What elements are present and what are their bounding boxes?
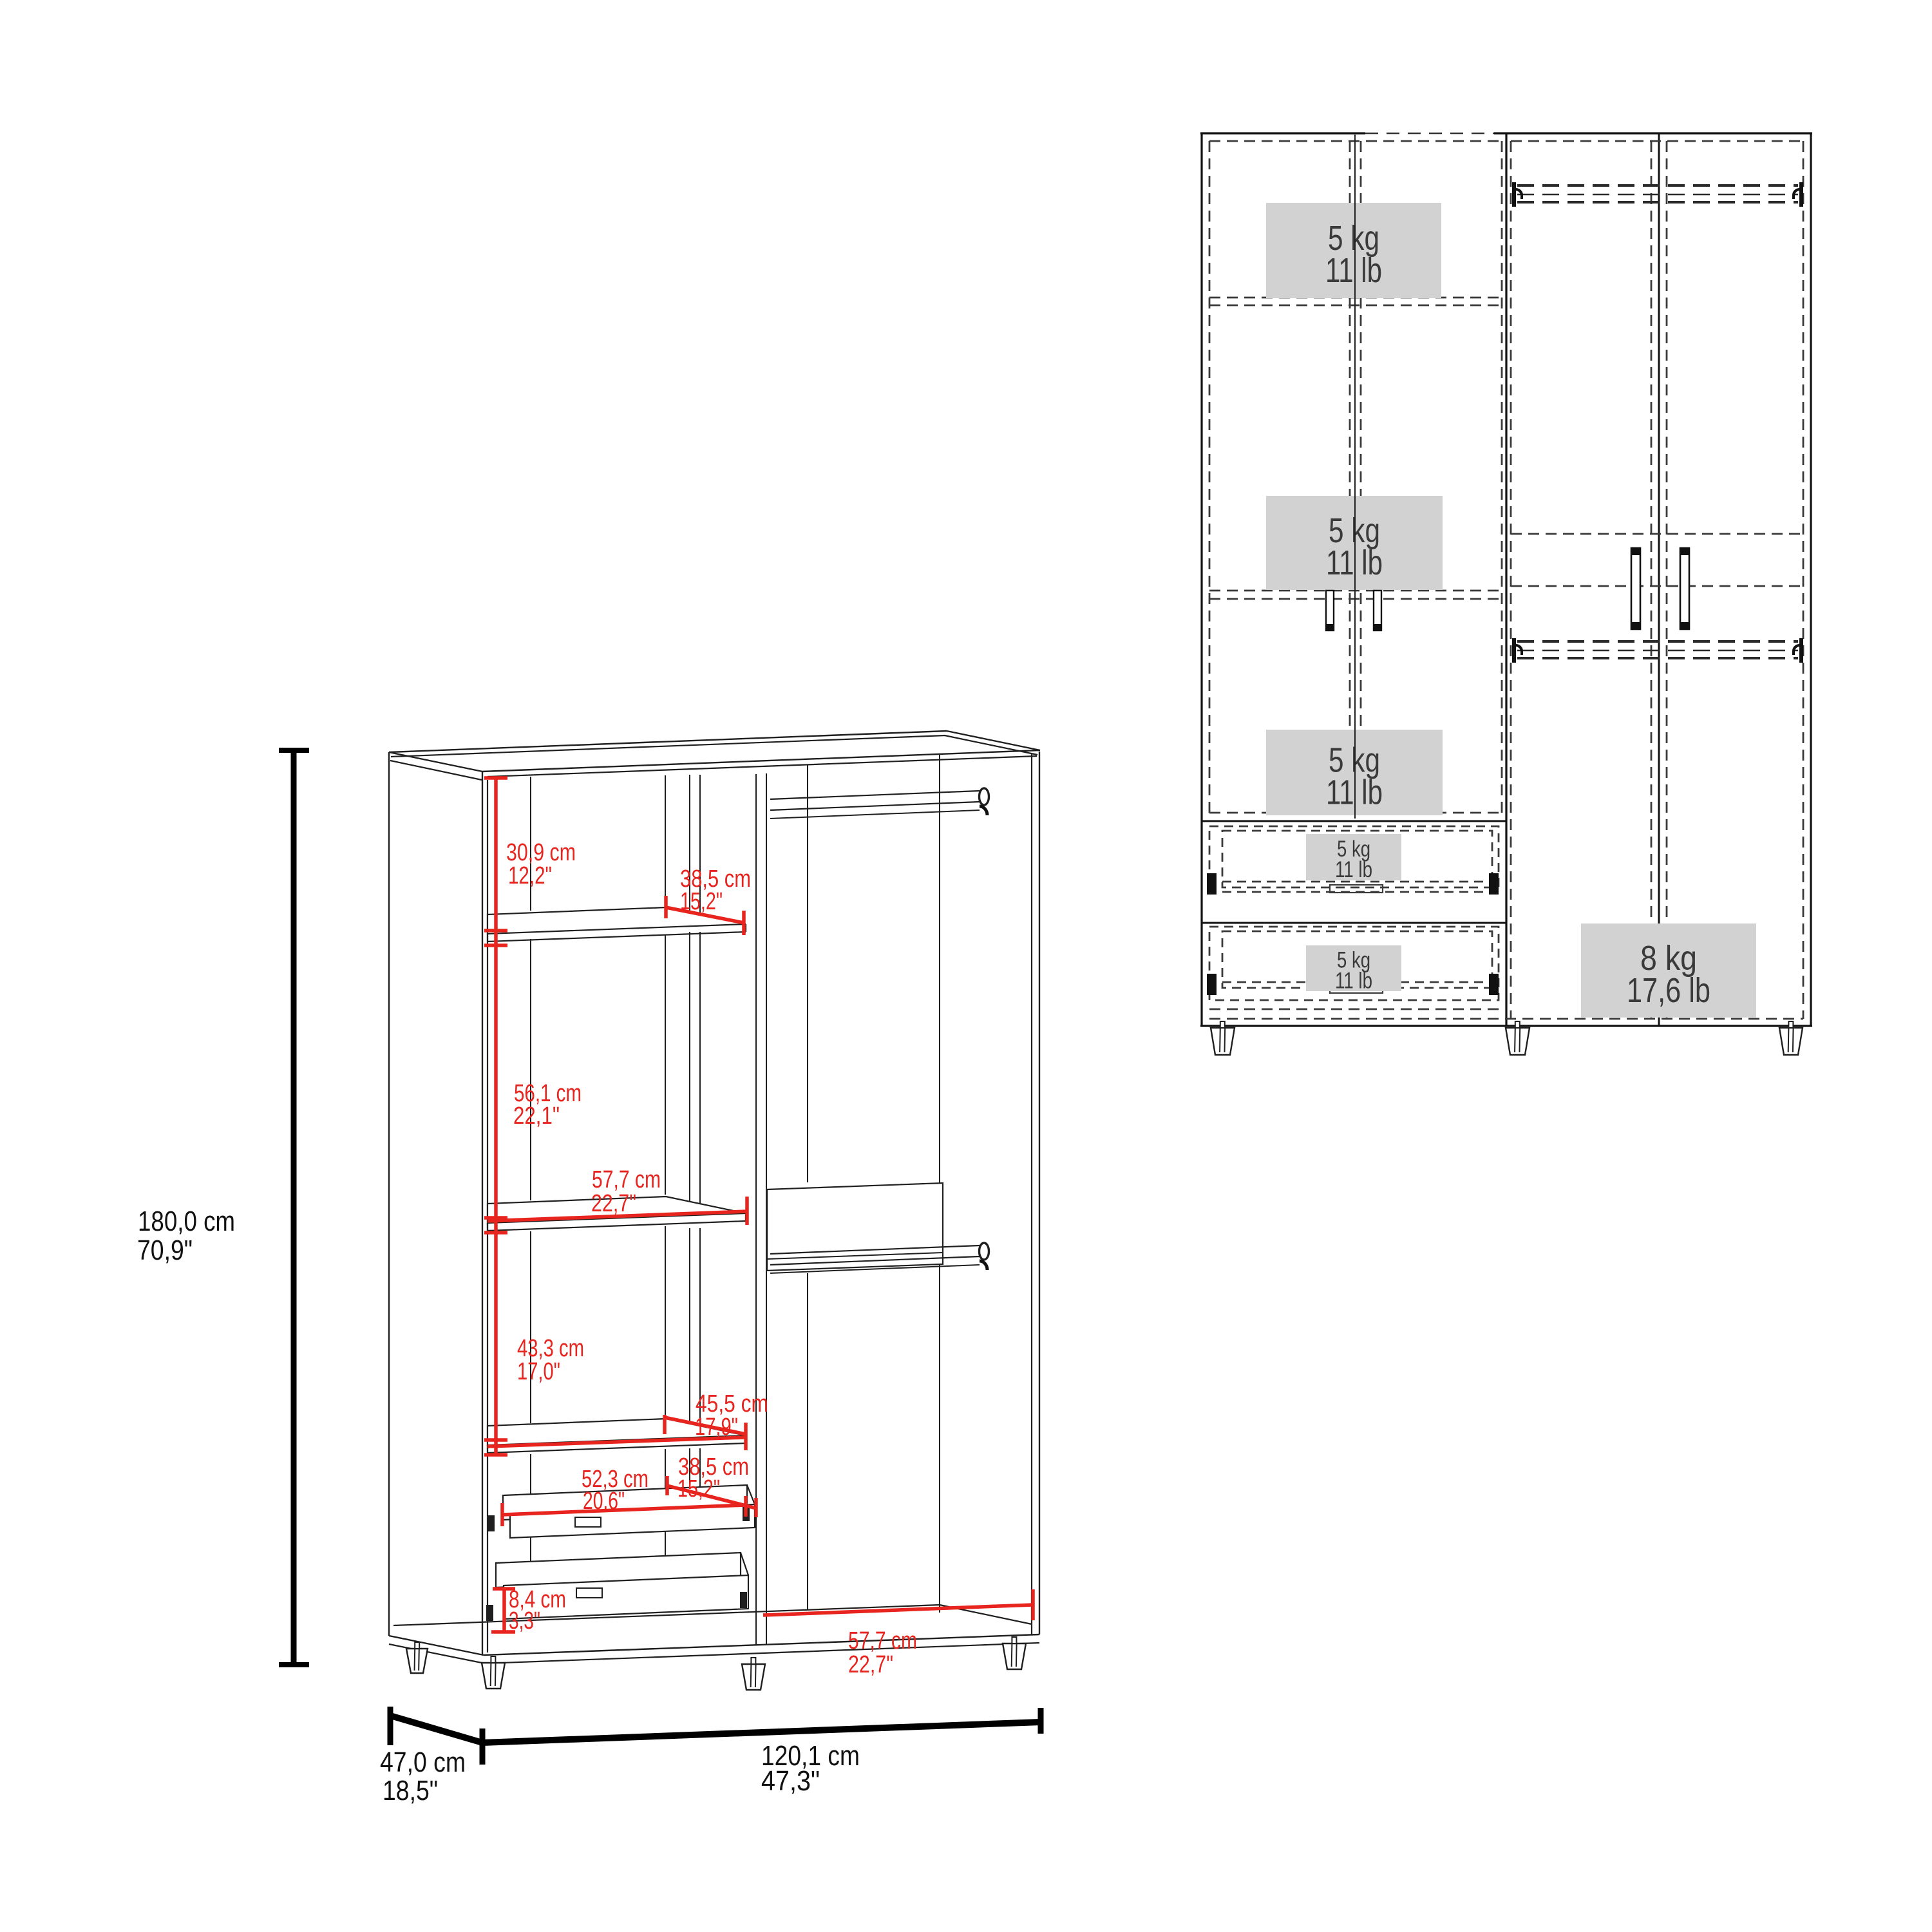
svg-text:11 lb: 11 lb — [1335, 857, 1372, 882]
svg-text:70,9": 70,9" — [137, 1235, 193, 1266]
svg-text:15,2": 15,2" — [680, 888, 723, 915]
svg-text:17,0": 17,0" — [517, 1358, 560, 1385]
svg-text:22,7": 22,7" — [848, 1651, 893, 1678]
svg-text:3,3": 3,3" — [509, 1607, 540, 1634]
svg-text:57,7 cm: 57,7 cm — [848, 1627, 917, 1654]
svg-text:18,5": 18,5" — [383, 1775, 438, 1806]
svg-text:17,9": 17,9" — [695, 1414, 738, 1441]
svg-text:47,0 cm: 47,0 cm — [380, 1747, 466, 1778]
svg-text:22,7": 22,7" — [591, 1190, 636, 1217]
svg-text:22,1": 22,1" — [513, 1103, 560, 1130]
svg-text:15,2": 15,2" — [677, 1475, 720, 1502]
svg-text:11 lb: 11 lb — [1325, 251, 1382, 290]
svg-text:57,7 cm: 57,7 cm — [592, 1166, 661, 1193]
svg-text:47,3": 47,3" — [761, 1765, 820, 1797]
svg-text:180,0 cm: 180,0 cm — [138, 1206, 235, 1237]
svg-text:17,6 lb: 17,6 lb — [1627, 971, 1710, 1010]
svg-text:12,2": 12,2" — [508, 862, 552, 889]
svg-text:20,6": 20,6" — [583, 1488, 625, 1515]
svg-text:11 lb: 11 lb — [1335, 969, 1372, 994]
